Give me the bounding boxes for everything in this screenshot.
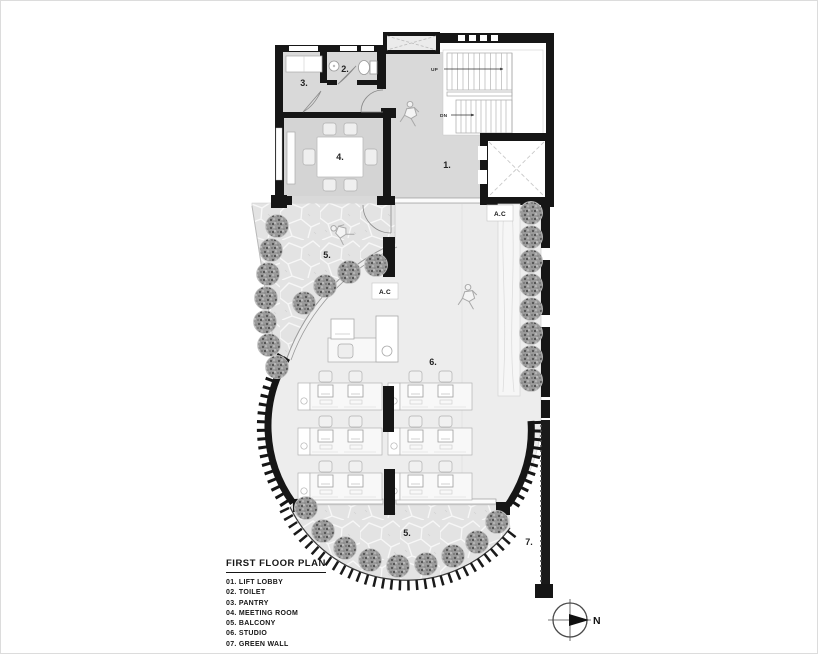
- staircase: [443, 50, 543, 135]
- floor-plan-drawing: UP DN: [0, 0, 818, 654]
- north-arrow: N: [548, 599, 601, 641]
- legend-title: FIRST FLOOR PLAN: [226, 558, 326, 573]
- room-label-lift-lobby: 1.: [443, 160, 451, 170]
- floor-plan-page: UP DN: [0, 0, 818, 654]
- legend-item: 03. PANTRY: [226, 599, 326, 609]
- legend: FIRST FLOOR PLAN 01. LIFT LOBBY 02. TOIL…: [226, 558, 326, 650]
- room-label-meeting-room: 4.: [336, 152, 344, 162]
- ac-label: A.C: [494, 211, 506, 218]
- room-label-balcony-upper: 5.: [323, 250, 331, 260]
- curtain: [498, 204, 520, 396]
- duct-shaft: [385, 34, 438, 52]
- lift-shaft: [478, 133, 553, 205]
- north-label: N: [593, 615, 601, 627]
- room-label-studio: 6.: [429, 357, 437, 367]
- ac-unit-mid: A.C: [372, 283, 398, 299]
- stair-down-label: DN: [440, 113, 448, 119]
- room-label-balcony-lower: 5.: [403, 528, 411, 538]
- legend-items: 01. LIFT LOBBY 02. TOILET 03. PANTRY 04.…: [226, 578, 326, 650]
- stair-up-label: UP: [431, 67, 439, 73]
- legend-item: 07. GREEN WALL: [226, 640, 326, 650]
- legend-item: 01. LIFT LOBBY: [226, 578, 326, 588]
- wc-bowl: [359, 61, 370, 75]
- lift-door: [478, 146, 487, 160]
- room-label-pantry: 3.: [300, 78, 308, 88]
- wc-tank: [370, 61, 377, 74]
- legend-item: 06. STUDIO: [226, 629, 326, 639]
- credenza: [287, 132, 295, 184]
- legend-item: 05. BALCONY: [226, 619, 326, 629]
- lift-door: [478, 170, 487, 184]
- ac-unit-top: A.C: [487, 205, 513, 221]
- ac-label: A.C: [379, 289, 391, 296]
- pantry-counter: [286, 56, 322, 72]
- legend-item: 04. MEETING ROOM: [226, 609, 326, 619]
- room-label-toilet: 2.: [341, 64, 349, 74]
- legend-item: 02. TOILET: [226, 588, 326, 598]
- room-label-green-wall: 7.: [525, 537, 533, 547]
